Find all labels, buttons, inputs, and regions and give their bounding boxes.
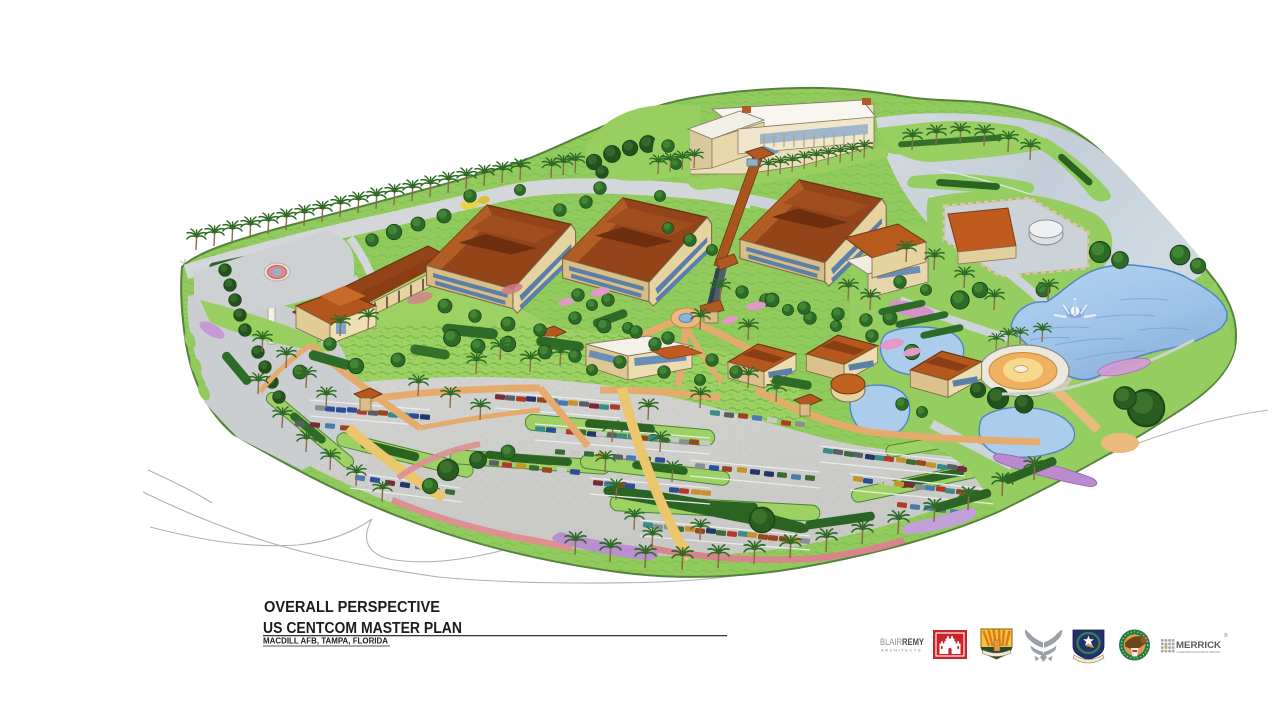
svg-text:A GREATER MEASURE OF SERVICE: A GREATER MEASURE OF SERVICE xyxy=(1177,650,1221,654)
svg-text:®: ® xyxy=(1224,632,1228,639)
svg-text:BLAIRREMY: BLAIRREMY xyxy=(880,637,924,647)
svg-text:ARCHITECTS: ARCHITECTS xyxy=(881,648,922,653)
svg-text:OVERALL PERSPECTIVE: OVERALL PERSPECTIVE xyxy=(264,599,440,616)
svg-text:MACDILL AFB, TAMPA, FLORIDA: MACDILL AFB, TAMPA, FLORIDA xyxy=(263,636,388,646)
svg-text:MERRICK: MERRICK xyxy=(1176,640,1222,650)
svg-text:US CENTCOM MASTER PLAN: US CENTCOM MASTER PLAN xyxy=(263,620,462,637)
